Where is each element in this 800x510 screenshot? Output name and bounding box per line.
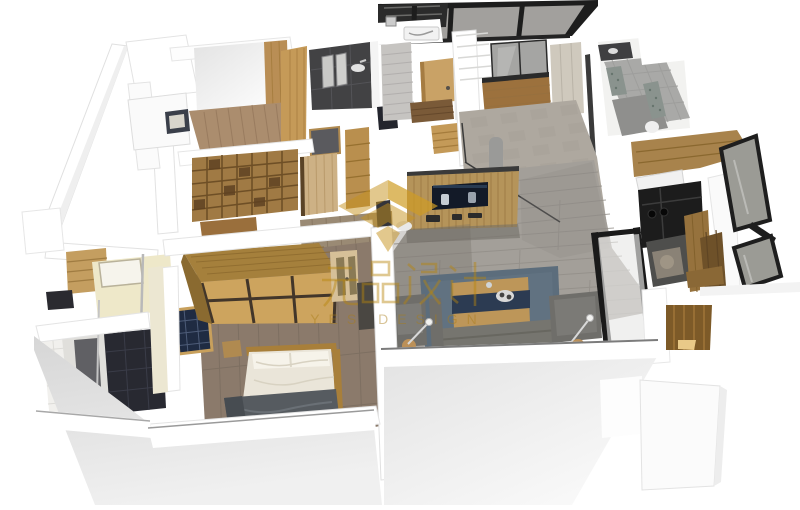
svg-text:YES DESIGN: YES DESIGN bbox=[310, 311, 486, 327]
